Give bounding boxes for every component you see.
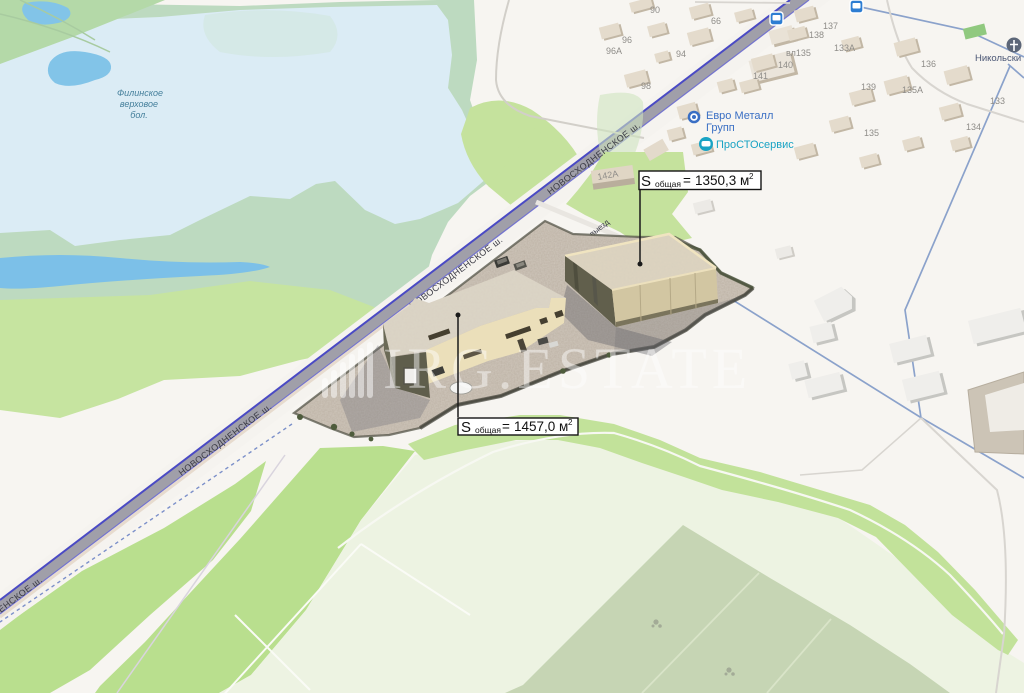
svg-text:вл135: вл135 bbox=[786, 48, 811, 58]
svg-text:135: 135 bbox=[864, 128, 879, 138]
svg-text:S: S bbox=[461, 419, 471, 436]
svg-text:общая: общая bbox=[655, 179, 681, 189]
svg-text:135А: 135А bbox=[902, 85, 923, 95]
svg-text:верховое: верховое bbox=[120, 99, 158, 109]
svg-text:139: 139 bbox=[861, 82, 876, 92]
svg-text:=: = bbox=[683, 173, 691, 188]
svg-text:Никольски: Никольски bbox=[975, 53, 1021, 64]
svg-text:134: 134 bbox=[966, 122, 981, 132]
svg-text:2: 2 bbox=[749, 172, 754, 181]
svg-text:133: 133 bbox=[990, 96, 1005, 106]
svg-text:Евро Металл: Евро Металл bbox=[706, 110, 773, 122]
svg-text:140: 140 bbox=[778, 60, 793, 70]
svg-text:133А: 133А bbox=[834, 43, 855, 53]
svg-text:Филинское: Филинское bbox=[117, 88, 163, 98]
svg-text:бол.: бол. bbox=[130, 110, 147, 120]
svg-text:общая: общая bbox=[475, 425, 501, 435]
svg-text:S: S bbox=[641, 173, 651, 190]
svg-text:141: 141 bbox=[753, 71, 768, 81]
svg-text:136: 136 bbox=[921, 59, 936, 69]
svg-text:1350,3 м: 1350,3 м bbox=[695, 173, 749, 188]
svg-text:96А: 96А bbox=[606, 46, 622, 56]
svg-text:98: 98 bbox=[641, 81, 651, 91]
svg-text:90: 90 bbox=[650, 5, 660, 15]
svg-text:IRG.ESTATE: IRG.ESTATE bbox=[383, 336, 752, 401]
svg-text:Групп: Групп bbox=[706, 122, 735, 134]
svg-text:66: 66 bbox=[711, 16, 721, 26]
svg-text:2: 2 bbox=[568, 418, 573, 427]
svg-text:94: 94 bbox=[676, 49, 686, 59]
svg-text:138: 138 bbox=[809, 30, 824, 40]
svg-text:=: = bbox=[502, 419, 510, 434]
svg-text:ПроСТОсервис: ПроСТОсервис bbox=[716, 139, 794, 151]
svg-text:96: 96 bbox=[622, 35, 632, 45]
svg-text:137: 137 bbox=[823, 21, 838, 31]
svg-text:1457,0 м: 1457,0 м bbox=[514, 419, 568, 434]
